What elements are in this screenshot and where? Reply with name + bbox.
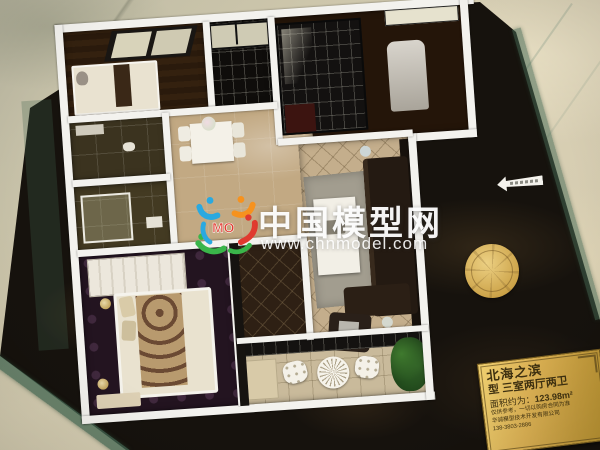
dining-chair (178, 126, 191, 142)
window-pane (111, 31, 152, 58)
dining-chair (233, 142, 246, 158)
sticker-fine-print (510, 179, 538, 185)
wardrobe-figure (386, 39, 429, 111)
balcony-cabinet (244, 358, 279, 400)
bed-pillow (122, 320, 137, 340)
bathroom-toilet (123, 142, 136, 152)
window-pane (151, 29, 192, 56)
room-bathroom-one (68, 113, 170, 183)
bathroom-cabinet (146, 216, 163, 228)
bed-runner (113, 64, 132, 107)
shower-glass (80, 192, 133, 243)
sofa-chaise (343, 283, 411, 318)
tea-set (325, 219, 346, 234)
photo-canvas: MO 中国模型网 www.chnmodel.com 北海之滨 型 三室两厅两卫 … (0, 0, 600, 450)
figure-on-bed (76, 71, 89, 86)
dining-chair (232, 122, 245, 138)
balcony-chair-right (354, 355, 380, 379)
cabinet-dark-red (285, 103, 317, 133)
entry-transom-window (209, 20, 271, 50)
bathroom-sink (75, 124, 104, 136)
plaque-unit-type: 型 三室两厅两卫 (488, 371, 600, 398)
dining-chair (179, 146, 192, 162)
coffee-table (313, 197, 360, 276)
apartment-model (54, 0, 501, 430)
master-duvet (135, 293, 187, 388)
info-plaque: 北海之滨 型 三室两厅两卫 面积约为：123.98m² 仅供参考，一切以购房合同… (477, 349, 600, 450)
plaque-corner-ornament (578, 354, 598, 374)
glass-partition-reflection (281, 27, 315, 84)
